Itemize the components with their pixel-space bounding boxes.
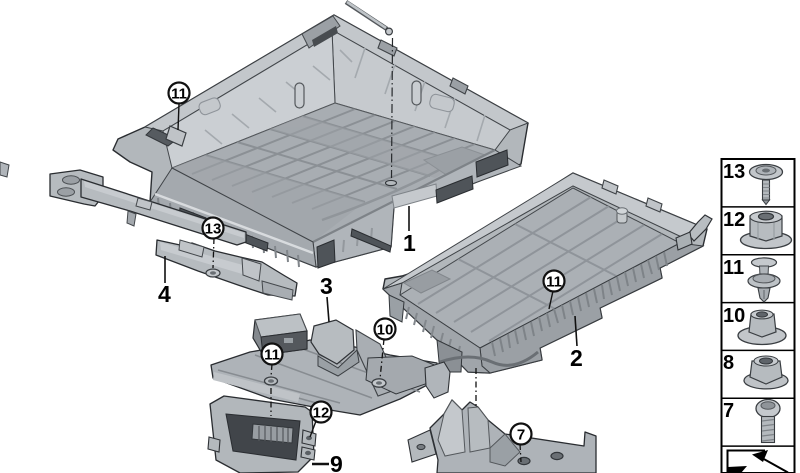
svg-text:3: 3	[320, 273, 333, 299]
svg-text:10: 10	[723, 305, 745, 327]
svg-text:7: 7	[723, 400, 734, 422]
svg-text:13: 13	[723, 161, 745, 183]
svg-text:13: 13	[205, 221, 222, 238]
svg-text:12: 12	[723, 209, 745, 231]
svg-text:1: 1	[403, 230, 416, 256]
svg-text:11: 11	[171, 86, 187, 103]
svg-text:9: 9	[330, 451, 343, 473]
svg-text:4: 4	[158, 281, 171, 307]
svg-text:11: 11	[723, 257, 744, 279]
svg-text:8: 8	[723, 352, 734, 374]
svg-text:12: 12	[313, 405, 330, 422]
svg-text:10: 10	[377, 322, 394, 339]
svg-text:2: 2	[570, 345, 583, 371]
svg-text:11: 11	[264, 347, 280, 364]
svg-text:7: 7	[517, 427, 525, 444]
svg-text:11: 11	[546, 274, 562, 291]
